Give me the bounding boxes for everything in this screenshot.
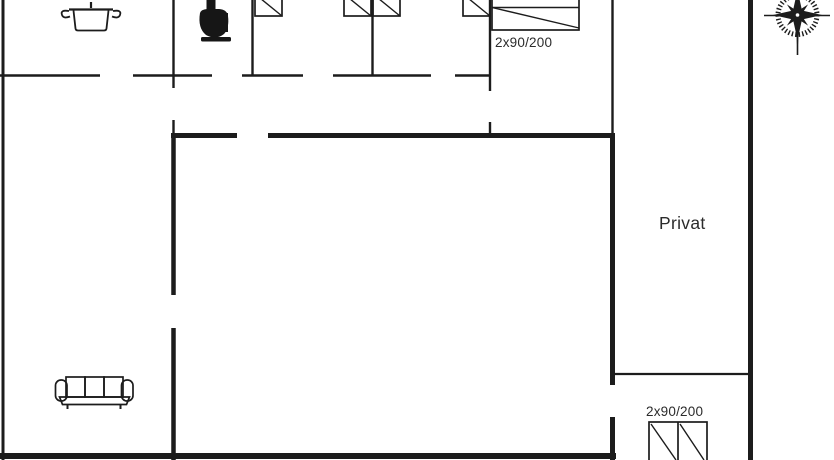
bed-size-label-top: 2x90/200 (495, 35, 552, 50)
toilet-base (201, 37, 231, 42)
compass-rose-icon (764, 0, 830, 55)
sofa-cushion (104, 377, 123, 397)
bed-diagonal (463, 0, 490, 16)
bed-diagonal (651, 424, 676, 460)
bed-diagonal (255, 0, 282, 16)
bed-size-label-bottom: 2x90/200 (646, 404, 703, 419)
single-bed-symbol (463, 0, 490, 16)
sofa-cushion (66, 377, 85, 397)
sofa-icon (56, 377, 134, 409)
bed-diagonal (344, 0, 371, 16)
floorplan-page: 2x90/200 Privat 2x90/200 (0, 0, 834, 460)
bed-diagonal (373, 0, 400, 16)
interior-walls-thick (171, 133, 615, 460)
single-bed-symbol (255, 0, 282, 16)
floorplan-drawing: 2x90/200 Privat 2x90/200 (0, 0, 834, 460)
pot-body (74, 11, 109, 31)
toilet-icon (199, 0, 231, 42)
bed-diagonal (492, 8, 579, 29)
bed-diagonal (680, 424, 704, 460)
single-bed-symbol (373, 0, 400, 16)
room-label-privat: Privat (659, 213, 706, 233)
compass-center-dot (796, 13, 800, 17)
double-bed-symbol (492, 0, 579, 30)
pot-handle-right (112, 11, 120, 18)
sofa-cushion (85, 377, 104, 397)
bunk-bed-symbol (649, 422, 707, 460)
outer-walls (0, 0, 751, 460)
single-bed-symbol (344, 0, 371, 16)
sofa-base (60, 397, 130, 405)
cooking-pot-icon (62, 2, 121, 31)
interior-walls-thin (0, 0, 750, 374)
toilet-cistern (216, 13, 228, 32)
pot-handle-left (62, 11, 70, 18)
